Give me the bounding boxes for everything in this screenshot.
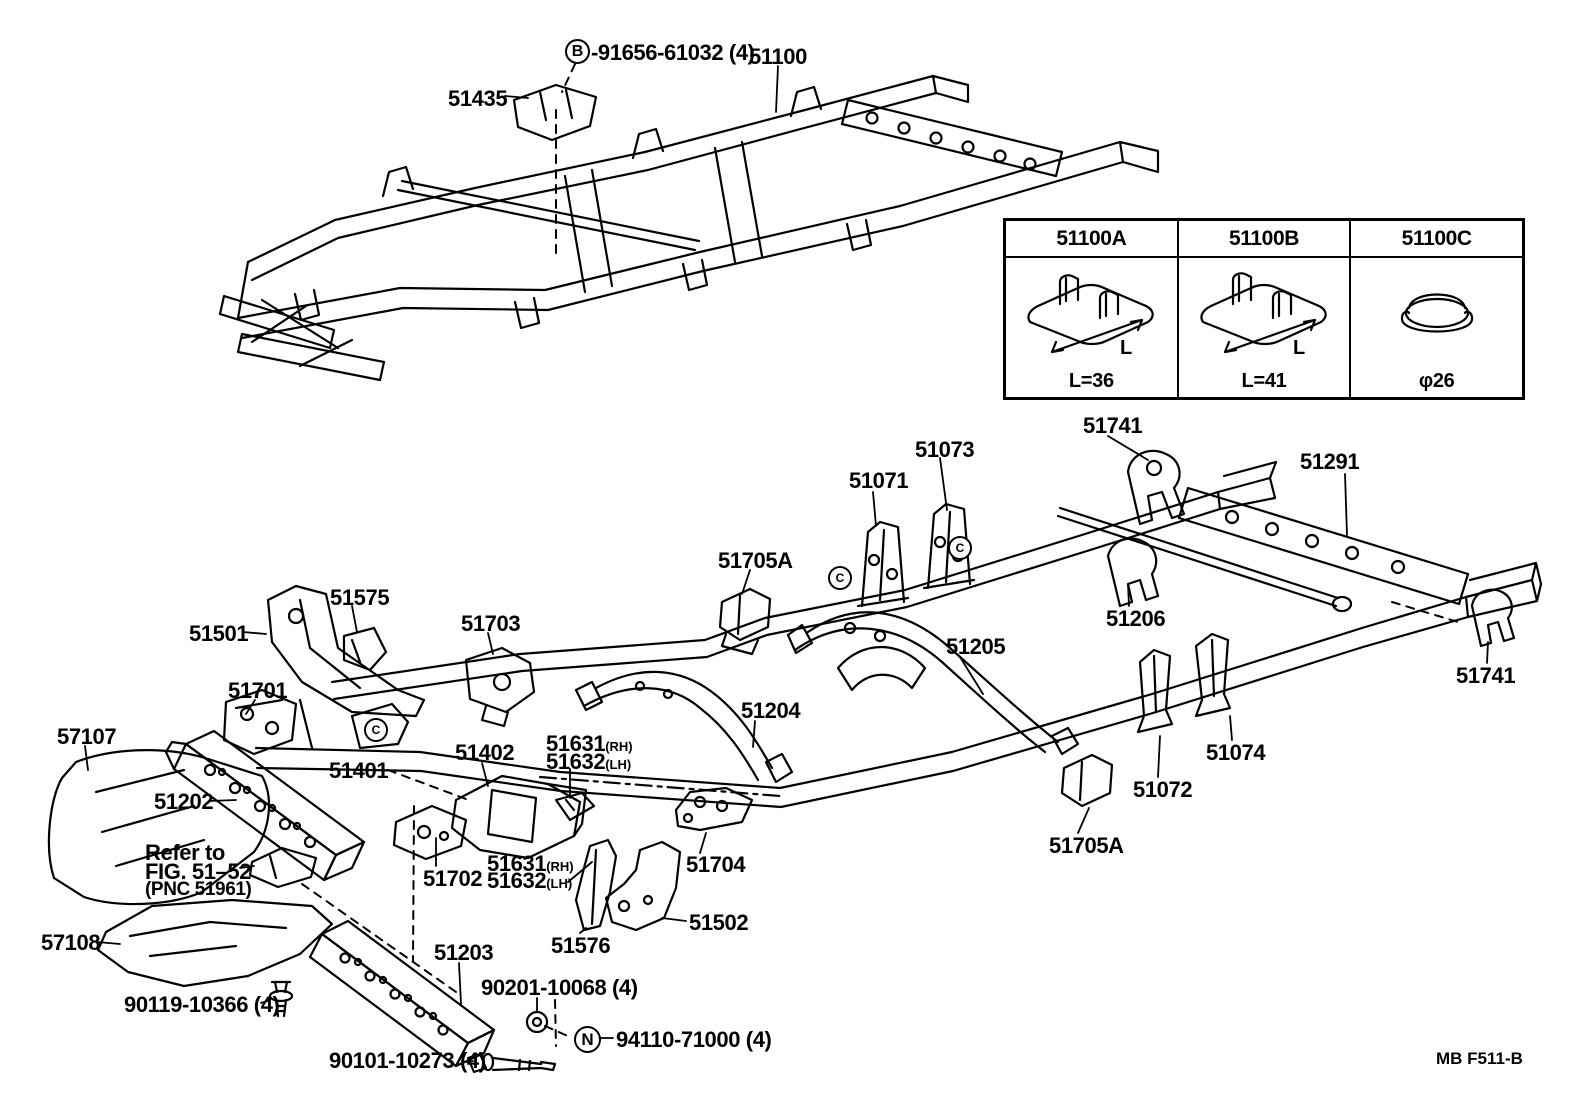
part-label-51072: 51072 (1133, 779, 1192, 801)
assembly-mark-c: C (948, 536, 972, 560)
part-label-51741-right: 51741 (1456, 665, 1515, 687)
frame-clip-variant-table: 51100A L L=36 51100B (1003, 218, 1525, 400)
part-label-57108: 57108 (41, 932, 100, 954)
part-number: 51632 (487, 868, 546, 893)
table-col-51100c: 51100C φ26 (1351, 221, 1522, 397)
part-label-57107: 57107 (57, 726, 116, 748)
part-number: 51632 (546, 749, 605, 774)
part-label-51435: 51435 (448, 88, 507, 110)
part-label-51402: 51402 (455, 742, 514, 764)
frame-clip-icon: L (1016, 266, 1166, 362)
part-label-51705a-left: 51705A (718, 550, 793, 572)
frame-clip-icon: L (1189, 266, 1339, 362)
table-dim-51100a: L=36 (1069, 370, 1114, 393)
table-dim-51100c: φ26 (1419, 370, 1455, 393)
part-label-51502: 51502 (689, 912, 748, 934)
hole-plug-icon (1362, 266, 1512, 362)
table-header-51100b: 51100B (1179, 221, 1350, 258)
part-label-51741-top: 51741 (1083, 415, 1142, 437)
part-label-51632-1: 51632(LH) (546, 751, 631, 773)
dim-letter: L (1293, 337, 1305, 359)
table-cell-51100b: L L=41 (1179, 258, 1350, 397)
part-label-51705a-right: 51705A (1049, 835, 1124, 857)
part-label-90119-10366: 90119-10366 (4) (124, 994, 279, 1016)
part-label-51206: 51206 (1106, 608, 1165, 630)
table-col-51100a: 51100A L L=36 (1006, 221, 1179, 397)
part-label-51074: 51074 (1206, 742, 1265, 764)
part-label-51202: 51202 (154, 791, 213, 813)
part-label-90201-10068: 90201-10068 (4) (481, 977, 638, 999)
refer-note-line3: (PNC 51961) (145, 880, 251, 899)
assembly-mark-c: C (828, 566, 852, 590)
part-label-51204: 51204 (741, 700, 800, 722)
table-header-51100c: 51100C (1351, 221, 1522, 258)
lh-suffix: (LH) (605, 757, 631, 772)
table-header-51100a: 51100A (1006, 221, 1177, 258)
bolt-symbol-b: B (565, 39, 590, 64)
part-label-51203: 51203 (434, 942, 493, 964)
table-dim-51100b: L=41 (1242, 370, 1287, 393)
table-col-51100b: 51100B L L=41 (1179, 221, 1352, 397)
part-label-51205: 51205 (946, 636, 1005, 658)
part-label-51575: 51575 (330, 587, 389, 609)
part-label-51702: 51702 (423, 868, 482, 890)
dim-letter: L (1120, 337, 1132, 359)
part-label-51701: 51701 (228, 680, 287, 702)
part-label-51100: 51100 (749, 46, 807, 68)
part-label-51291: 51291 (1300, 451, 1359, 473)
part-label-91656-61032: -91656-61032 (4) (591, 42, 755, 64)
part-label-51704: 51704 (686, 854, 745, 876)
part-label-51401: 51401 (329, 760, 388, 782)
part-label-94110-71000: 94110-71000 (4) (616, 1029, 771, 1051)
lh-suffix: (LH) (546, 876, 572, 891)
table-cell-51100c: φ26 (1351, 258, 1522, 397)
nut-symbol-n: N (574, 1026, 601, 1053)
part-label-51703: 51703 (461, 613, 520, 635)
figure-code: MB F511-B (1436, 1050, 1523, 1067)
parts-diagram-canvas: B -91656-61032 (4) 51100 51435 51741 510… (0, 0, 1576, 1106)
part-label-51501: 51501 (189, 623, 248, 645)
part-label-51576: 51576 (551, 935, 610, 957)
lower-frame-art (49, 451, 1541, 1072)
part-label-90101-10273: 90101-10273 (4) (329, 1050, 486, 1072)
table-cell-51100a: L L=36 (1006, 258, 1177, 397)
part-label-51071: 51071 (849, 470, 908, 492)
part-label-51632-2: 51632(LH) (487, 870, 572, 892)
part-label-51073: 51073 (915, 439, 974, 461)
assembly-mark-c: C (364, 718, 388, 742)
